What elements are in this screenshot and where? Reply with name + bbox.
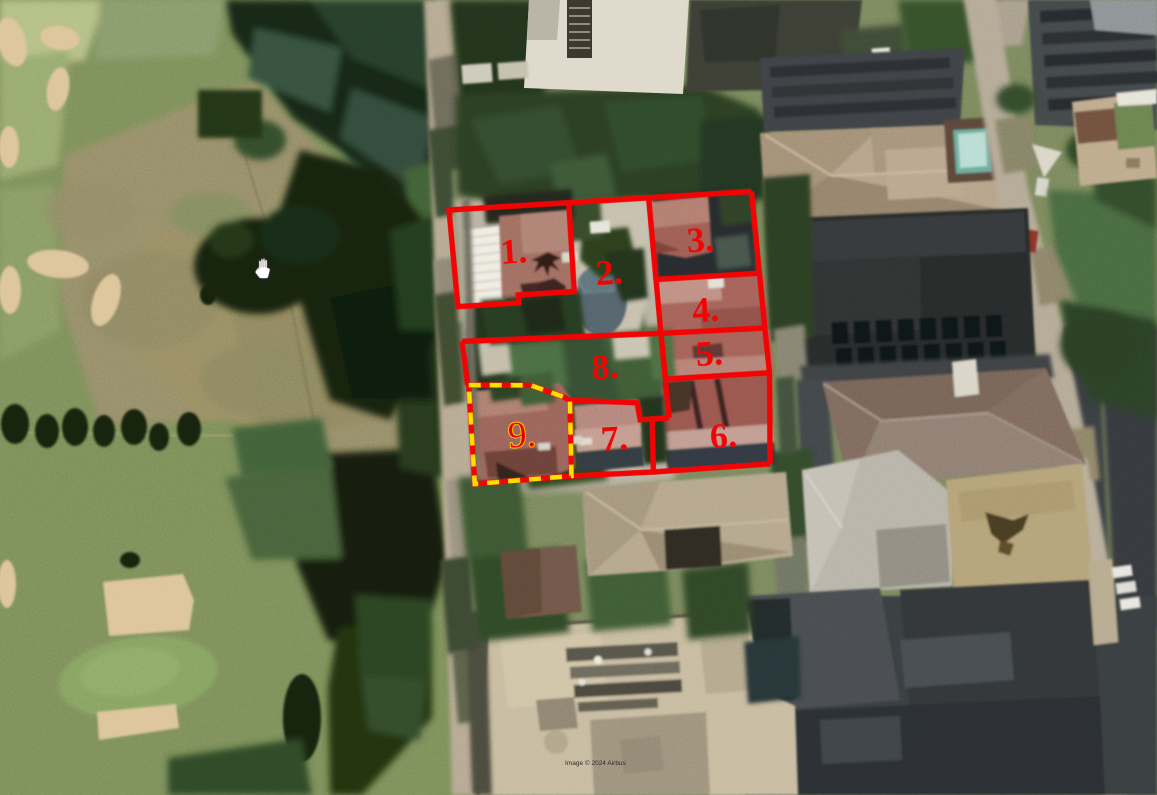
svg-text:5.: 5.	[695, 333, 724, 375]
svg-text:8.: 8.	[590, 346, 619, 388]
svg-text:9.: 9.	[507, 414, 537, 457]
svg-text:Image © 2024 Airbus: Image © 2024 Airbus	[565, 759, 627, 767]
svg-text:6.: 6.	[709, 415, 738, 457]
svg-text:4.: 4.	[691, 289, 720, 331]
svg-text:1.: 1.	[499, 230, 528, 272]
svg-text:7.: 7.	[600, 418, 629, 460]
svg-text:2.: 2.	[594, 252, 623, 294]
svg-text:3.: 3.	[686, 219, 715, 261]
